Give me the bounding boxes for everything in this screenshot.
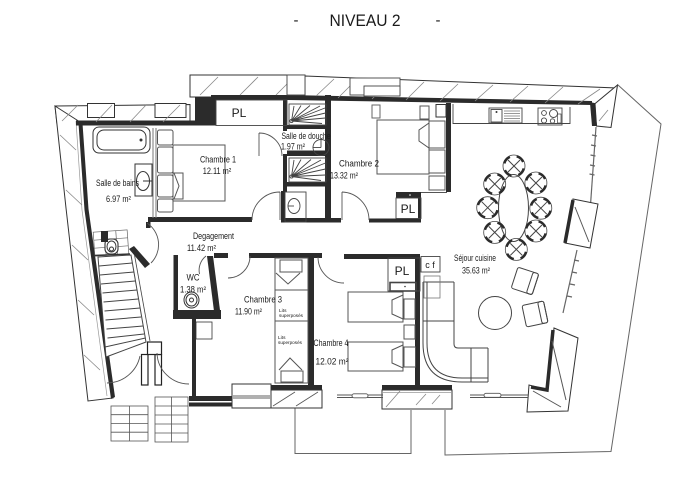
- svg-text:11.90 m²: 11.90 m²: [235, 307, 262, 317]
- svg-text:superposés: superposés: [279, 313, 304, 319]
- svg-text:35.63 m²: 35.63 m²: [462, 266, 490, 276]
- svg-text:1.38 m²: 1.38 m²: [180, 285, 206, 295]
- svg-text:1.97 m²: 1.97 m²: [281, 142, 305, 152]
- svg-text:Chambre 4: Chambre 4: [314, 338, 349, 348]
- svg-text:-: -: [436, 12, 441, 29]
- svg-text:c f: c f: [425, 260, 435, 270]
- svg-text:Chambre 2: Chambre 2: [339, 159, 379, 169]
- svg-text:NIVEAU 2: NIVEAU 2: [330, 11, 401, 30]
- svg-text:6.97 m²: 6.97 m²: [106, 194, 131, 204]
- svg-text:12.02 m²: 12.02 m²: [316, 357, 349, 367]
- svg-text:WC: WC: [187, 273, 200, 283]
- svg-text:Chambre 1: Chambre 1: [200, 155, 236, 165]
- svg-text:Séjour cuisine: Séjour cuisine: [454, 253, 496, 263]
- svg-text:PL: PL: [232, 106, 247, 120]
- svg-text:superposés: superposés: [278, 340, 303, 346]
- svg-text:Chambre 3: Chambre 3: [244, 295, 282, 305]
- svg-text:11.42 m²: 11.42 m²: [187, 243, 216, 253]
- svg-text:Salle de bains: Salle de bains: [96, 178, 139, 188]
- svg-text:-: -: [294, 12, 299, 29]
- svg-text:Salle de douche: Salle de douche: [282, 131, 331, 141]
- svg-text:Degagement: Degagement: [193, 231, 234, 241]
- svg-text:PL: PL: [401, 202, 416, 216]
- svg-text:13.32 m²: 13.32 m²: [330, 171, 358, 181]
- svg-text:PL: PL: [395, 264, 410, 278]
- svg-text:12.11 m²: 12.11 m²: [203, 166, 232, 176]
